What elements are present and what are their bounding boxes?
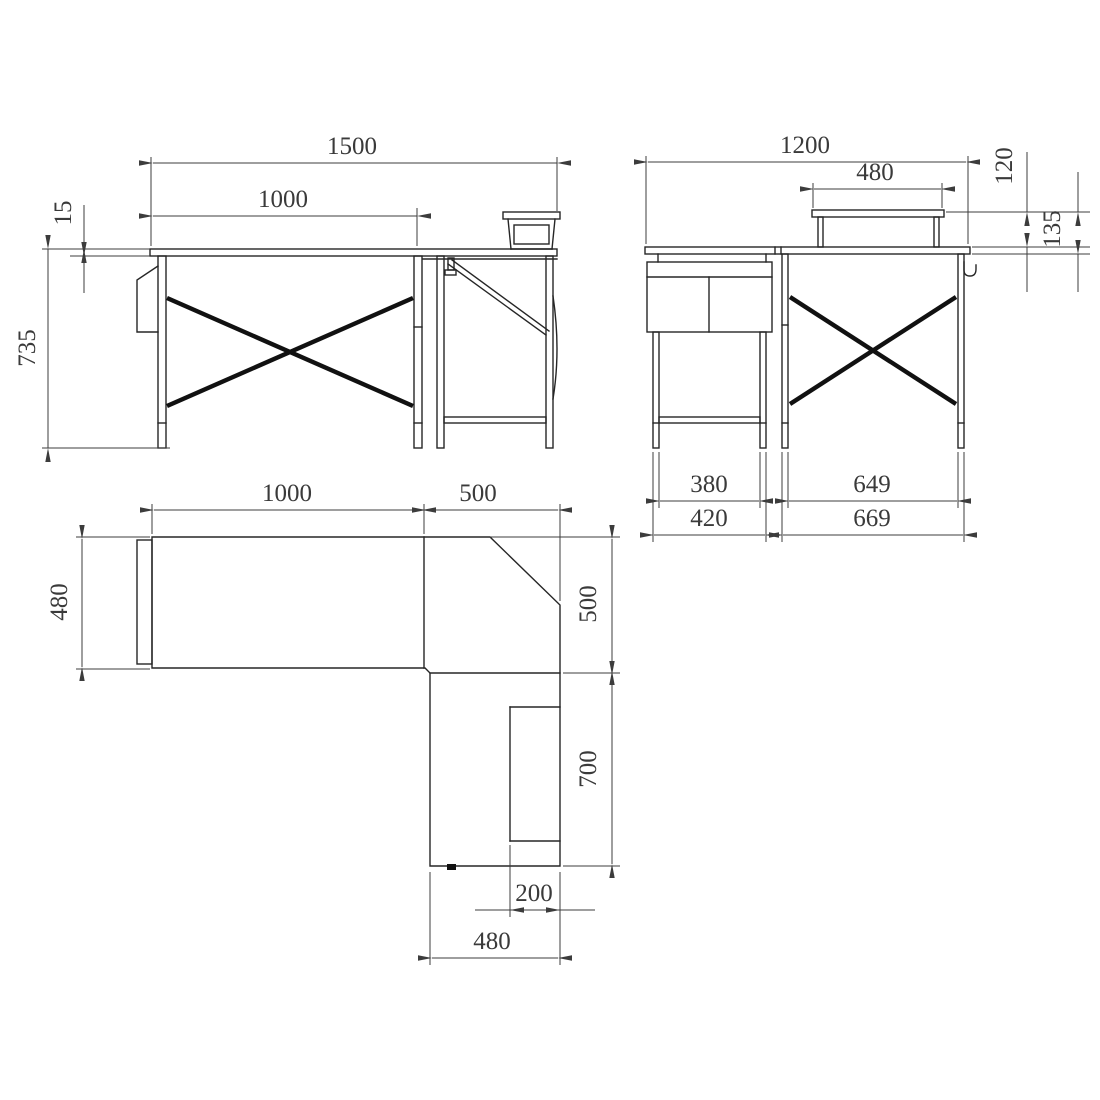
front-dim-height-label: 735 xyxy=(14,329,41,367)
front-view: 1500 1000 15 735 xyxy=(14,133,560,448)
side-dim-riser-height-label: 120 xyxy=(991,147,1018,185)
side-desk-right-leg xyxy=(958,254,964,448)
front-view-dimensions: 1500 1000 15 735 xyxy=(14,133,557,448)
side-dim-desk-feet-outer-label: 669 xyxy=(853,505,891,532)
plan-dim-corner-length-label: 500 xyxy=(459,480,497,507)
side-x-brace xyxy=(790,297,956,404)
side-desk-left-leg xyxy=(782,254,788,448)
front-right-leg xyxy=(414,256,422,448)
side-headphone-hook xyxy=(964,262,976,276)
plan-view-geometry xyxy=(137,537,560,870)
front-stretcher xyxy=(444,417,546,423)
front-desktop xyxy=(150,249,557,256)
side-dim-desk-feet-inner-label: 649 xyxy=(853,471,891,498)
side-view: 1200 480 120 135 380 42 xyxy=(645,132,1090,542)
front-left-leg xyxy=(158,256,166,448)
front-monitor-stand xyxy=(503,212,560,249)
front-dim-total-width-label: 1500 xyxy=(327,133,377,160)
side-dim-shelf-width-label: 480 xyxy=(856,159,894,186)
plan-view-dimensions: 1000 500 480 500 700 200 xyxy=(46,480,620,965)
front-view-geometry xyxy=(137,212,560,448)
plan-dim-main-length-label: 1000 xyxy=(262,480,312,507)
plan-dim-return-width-label: 480 xyxy=(473,928,511,955)
plan-view: 1000 500 480 500 700 200 xyxy=(46,480,620,965)
plan-monitor-stand-footprint xyxy=(510,707,560,841)
side-view-geometry xyxy=(645,210,976,448)
plan-desk-outline xyxy=(152,537,560,866)
plan-foot-mark xyxy=(447,864,456,870)
plan-dim-corner-depth-label: 500 xyxy=(575,585,602,623)
side-desktop xyxy=(645,247,970,254)
side-monitor-shelf xyxy=(812,210,944,247)
side-stretcher xyxy=(659,417,760,423)
side-dim-total-depth-label: 1200 xyxy=(780,132,830,159)
front-dim-top-thickness-label: 15 xyxy=(50,201,77,226)
front-x-brace xyxy=(167,298,413,406)
plan-dim-shelf-depth-label: 200 xyxy=(515,880,553,907)
plan-dim-main-depth-label: 480 xyxy=(46,583,73,621)
plan-side-panel xyxy=(137,540,152,664)
technical-drawing-page: 1500 1000 15 735 xyxy=(0,0,1100,1100)
side-dim-cabinet-feet-inner-label: 380 xyxy=(690,471,728,498)
side-dim-cabinet-feet-outer-label: 420 xyxy=(690,505,728,532)
plan-dim-return-length-label: 700 xyxy=(575,750,602,788)
desk-technical-drawing: 1500 1000 15 735 xyxy=(0,0,1100,1100)
side-dim-shelf-total-height-label: 135 xyxy=(1039,210,1066,248)
side-view-dimensions: 1200 480 120 135 380 42 xyxy=(646,132,1090,542)
front-side-bracket xyxy=(137,266,158,332)
side-cabinet xyxy=(647,254,772,332)
front-dim-main-width-label: 1000 xyxy=(258,186,308,213)
